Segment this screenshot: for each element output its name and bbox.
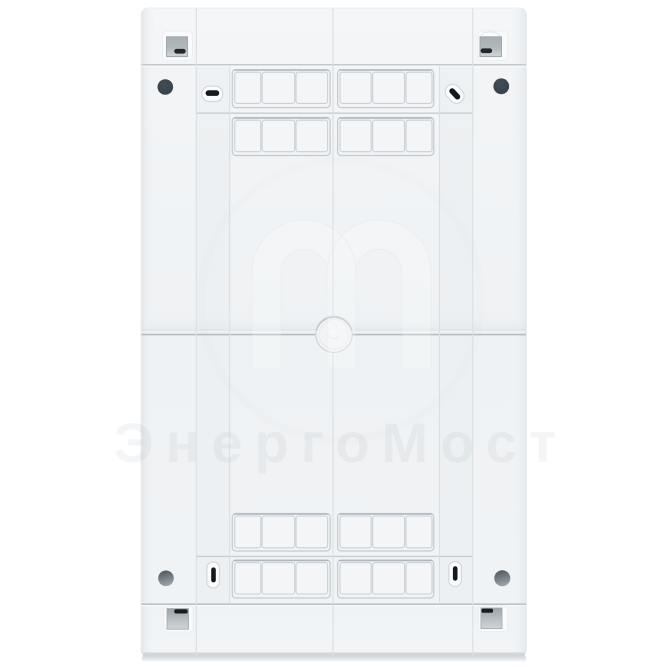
svg-text:ЭнергоМост: ЭнергоМост <box>114 411 569 474</box>
